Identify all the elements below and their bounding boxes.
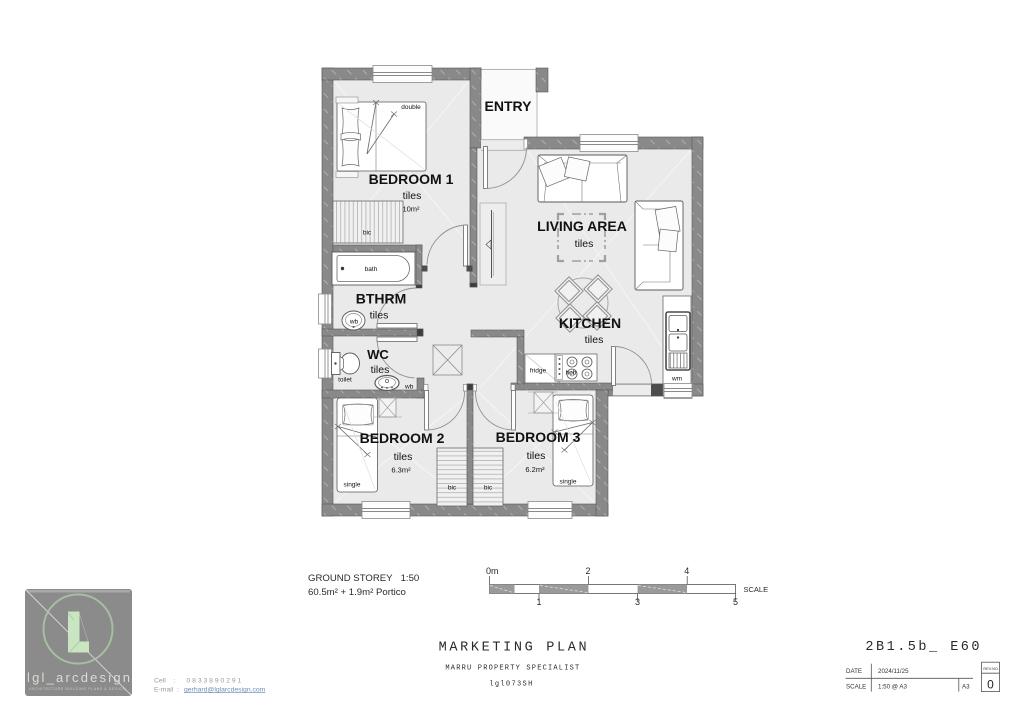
- svg-text:fridge: fridge: [530, 368, 547, 375]
- svg-text:tiles: tiles: [370, 310, 389, 322]
- svg-text:3: 3: [635, 597, 640, 607]
- svg-text:5: 5: [733, 597, 738, 607]
- svg-text:WC: WC: [367, 347, 389, 362]
- svg-text:tiles: tiles: [371, 364, 390, 376]
- svg-text:1: 1: [537, 597, 542, 607]
- svg-text:GROUND STOREY 1:50: GROUND STOREY 1:50: [308, 573, 419, 584]
- svg-text:A3: A3: [962, 684, 970, 691]
- svg-text:2B1.5b_ E60: 2B1.5b_ E60: [865, 640, 982, 655]
- svg-text:BEDROOM 1: BEDROOM 1: [369, 171, 454, 187]
- svg-text:bic: bic: [448, 485, 457, 492]
- svg-text:gerhard@lglarcdesign.com: gerhard@lglarcdesign.com: [184, 686, 266, 693]
- svg-text:bic: bic: [484, 485, 493, 492]
- svg-text:toilet: toilet: [338, 377, 352, 384]
- svg-text:double: double: [401, 104, 421, 111]
- svg-text:single: single: [344, 482, 361, 489]
- svg-text:hob: hob: [566, 370, 577, 377]
- svg-text:bic: bic: [363, 230, 372, 237]
- svg-text:REV:NO.: REV:NO.: [983, 667, 998, 671]
- svg-text:6.2m²: 6.2m²: [525, 465, 545, 474]
- svg-text:SCALE: SCALE: [846, 684, 866, 691]
- svg-text:lgl_arcdesign: lgl_arcdesign: [27, 670, 132, 685]
- svg-text:tiles: tiles: [585, 334, 604, 346]
- svg-text:wb: wb: [349, 319, 359, 326]
- svg-text:tiles: tiles: [403, 190, 422, 202]
- svg-text:BEDROOM 2: BEDROOM 2: [360, 430, 445, 446]
- svg-text:BEDROOM 3: BEDROOM 3: [496, 429, 581, 445]
- svg-text:4: 4: [684, 566, 689, 576]
- svg-text:ENTRY: ENTRY: [485, 98, 533, 114]
- svg-text:10m²: 10m²: [402, 205, 420, 214]
- svg-text:tiles: tiles: [527, 450, 546, 462]
- svg-text:bath: bath: [365, 266, 378, 273]
- svg-text:0: 0: [987, 678, 994, 692]
- svg-text:wb: wb: [404, 384, 414, 391]
- svg-text:1:50 @ A3: 1:50 @ A3: [878, 684, 908, 691]
- svg-text:ARCHITECTURE BUILDING PLANS &: ARCHITECTURE BUILDING PLANS & DESIGN: [29, 687, 126, 691]
- svg-text:Cell : 0 8 3 3 8 9 0 2: Cell : 0 8 3 3 8 9 0 2 9 1: [154, 678, 241, 685]
- svg-text:2024/11/25: 2024/11/25: [878, 668, 909, 675]
- svg-text:2: 2: [586, 566, 591, 576]
- svg-text:tiles: tiles: [394, 451, 413, 463]
- svg-text:BTHRM: BTHRM: [356, 291, 407, 307]
- svg-text:SCALE: SCALE: [744, 585, 769, 594]
- svg-text:LIVING AREA: LIVING AREA: [537, 218, 627, 234]
- svg-text:MARKETING PLAN: MARKETING PLAN: [439, 641, 590, 656]
- svg-text:tiles: tiles: [575, 238, 594, 250]
- svg-text:KITCHEN: KITCHEN: [559, 315, 621, 331]
- svg-text:E-mail :: E-mail :: [154, 686, 179, 693]
- svg-text:0m: 0m: [486, 566, 499, 576]
- svg-text:wm: wm: [671, 376, 682, 383]
- svg-text:60.5m² + 1.9m² Portico: 60.5m² + 1.9m² Portico: [308, 587, 406, 598]
- svg-text:single: single: [560, 479, 577, 486]
- svg-text:6.3m²: 6.3m²: [391, 466, 411, 475]
- svg-text:MARRU PROPERTY SPECIALIST: MARRU PROPERTY SPECIALIST: [445, 665, 580, 673]
- svg-text:lgl073SH: lgl073SH: [489, 681, 533, 689]
- svg-text:DATE: DATE: [846, 668, 862, 675]
